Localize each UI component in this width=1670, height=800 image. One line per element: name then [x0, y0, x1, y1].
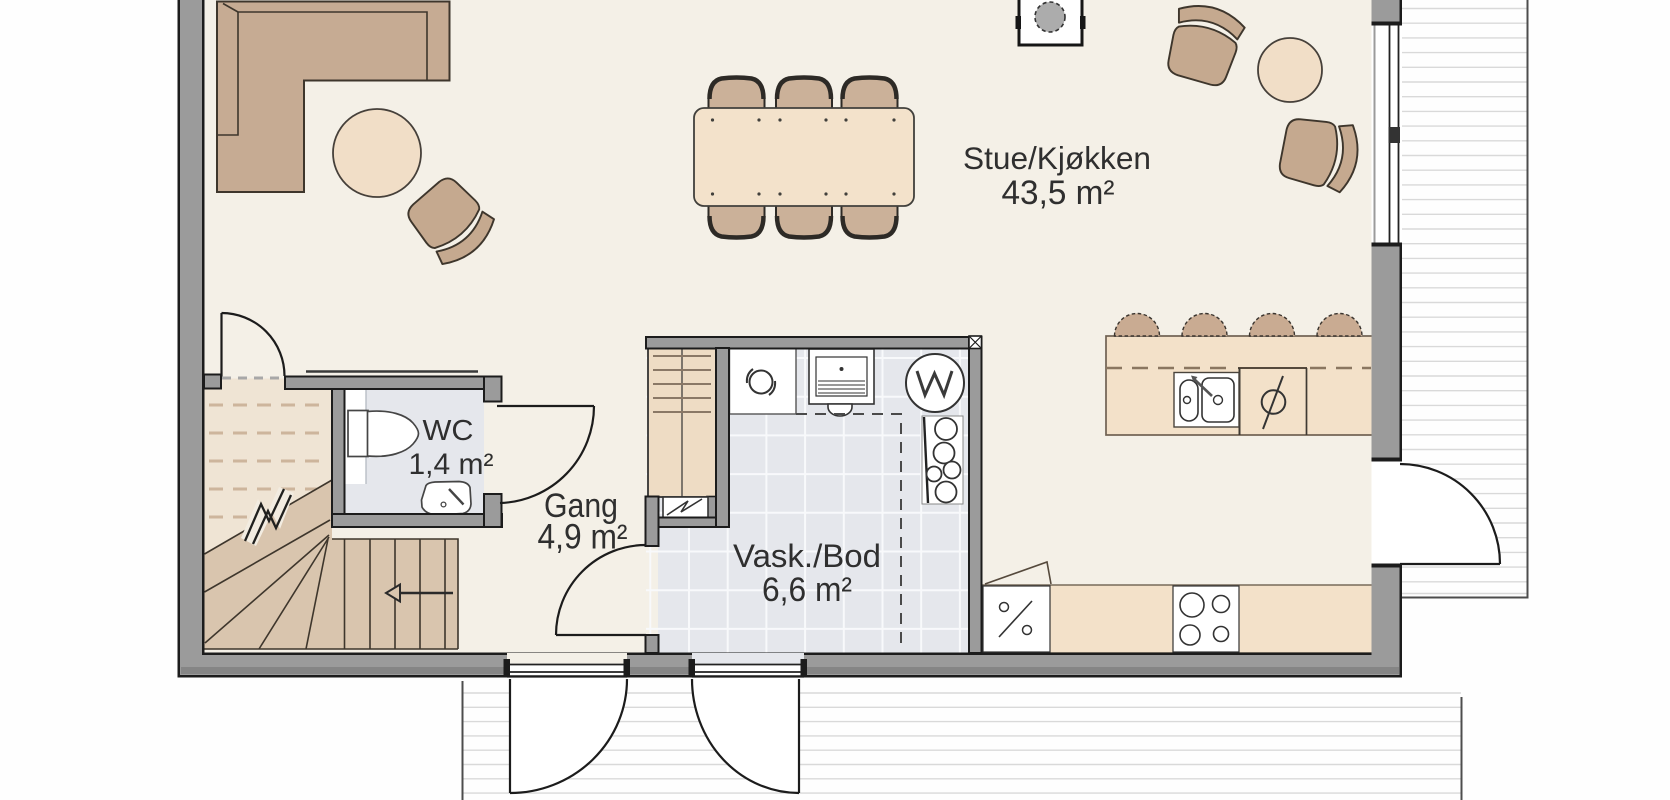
svg-text:Stue/Kjøkken: Stue/Kjøkken [963, 140, 1151, 176]
svg-text:Vask./Bod: Vask./Bod [733, 538, 881, 574]
svg-text:6,6 m²: 6,6 m² [762, 571, 852, 609]
svg-text:4,9 m²: 4,9 m² [538, 518, 628, 557]
svg-text:1,4 m²: 1,4 m² [409, 448, 494, 481]
svg-text:WC: WC [423, 415, 474, 447]
svg-text:43,5 m²: 43,5 m² [1002, 174, 1115, 212]
